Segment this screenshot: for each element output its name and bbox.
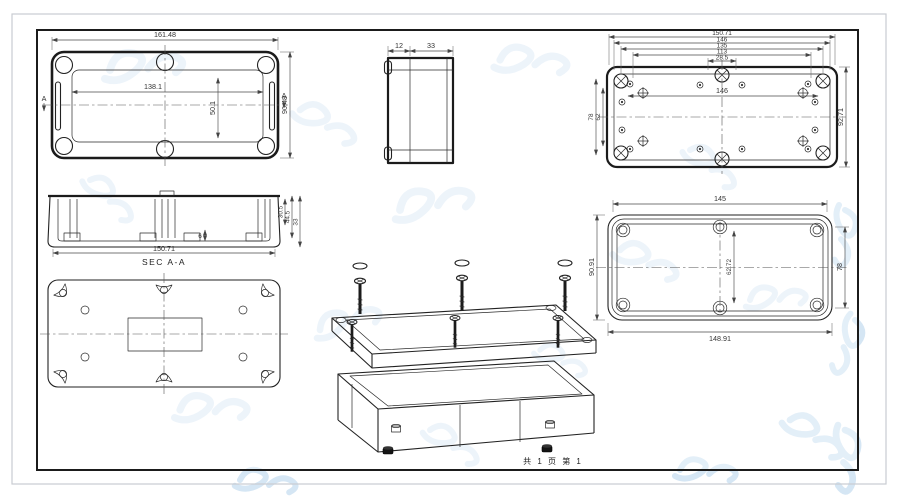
dim-section-width: 150.71	[153, 244, 175, 253]
dim-top-outer-width: 161.48	[154, 30, 176, 39]
section-marker-right: A	[282, 91, 287, 100]
dim-side-lid: 12	[395, 41, 403, 50]
section-marker-left: A	[42, 94, 47, 103]
dim-section-rib: 6	[198, 233, 202, 240]
dim-inside-height: 92.71	[836, 108, 845, 126]
dim-gasket-center: 62.72	[726, 259, 733, 275]
dim-gasket-bottom: 148.91	[709, 334, 731, 343]
page-footer-text: 共 1 页 第 1	[523, 456, 583, 466]
section-label: SEC A-A	[142, 257, 186, 267]
cad-drawing: 161.48 138.1 50.1 90.48 A A 12 33	[0, 0, 900, 500]
dim-inside-left-b: 62	[595, 113, 602, 121]
dim-section-total: 44.5	[285, 210, 292, 223]
dim-section-depth: 30.5	[278, 205, 285, 218]
dim-top-inner-height: 50.1	[208, 101, 217, 115]
dim-side-body: 33	[427, 41, 435, 50]
drawing-sheet: 161.48 138.1 50.1 90.48 A A 12 33	[0, 0, 900, 500]
dim-inside-inner-width: 146	[716, 86, 728, 95]
dim-gasket-right: 78	[835, 263, 844, 271]
dim-top-inner-width: 138.1	[144, 82, 162, 91]
dim-stack-5: 28.5	[716, 55, 729, 62]
dim-section-body-height: 33	[293, 218, 300, 226]
dim-gasket-left: 90.91	[587, 258, 596, 276]
dim-gasket-top: 145	[714, 194, 726, 203]
dim-inside-left-a: 78	[588, 113, 595, 121]
